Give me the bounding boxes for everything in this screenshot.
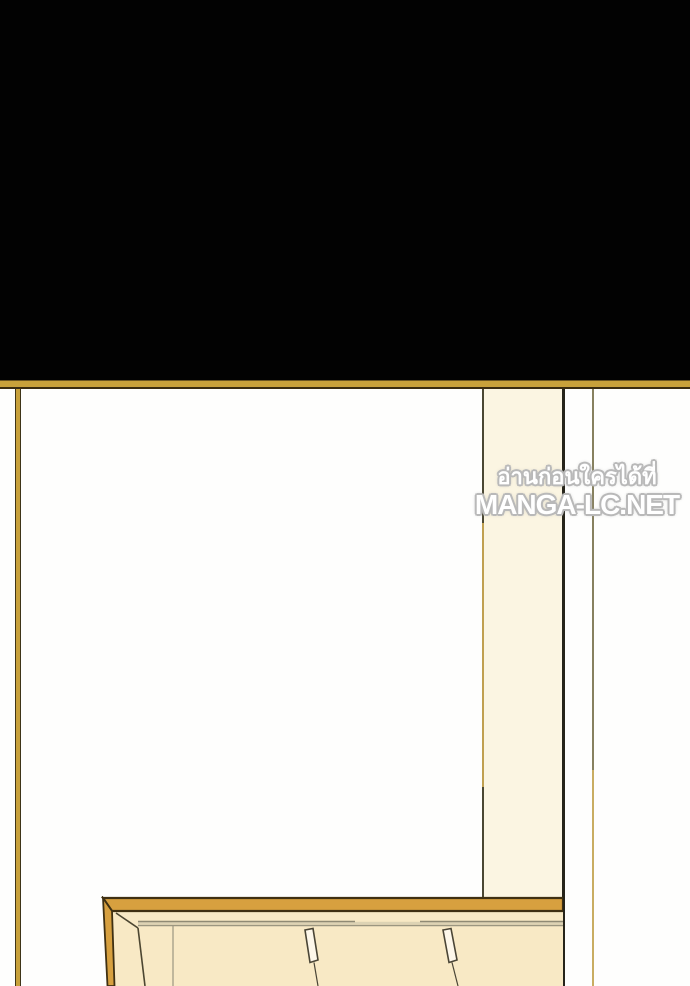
table-rim-top bbox=[103, 898, 563, 911]
room-scene: อ่านก่อนใครได้ที่ MANGA-LC.NET bbox=[0, 389, 690, 986]
top-black-panel bbox=[0, 0, 690, 380]
comic-page: อ่านก่อนใครได้ที่ MANGA-LC.NET bbox=[0, 0, 690, 986]
watermark-site-text: MANGA-LC.NET bbox=[468, 490, 686, 520]
wall-corner-trim-left bbox=[15, 389, 21, 986]
wooden-table bbox=[100, 896, 563, 986]
panel-divider-gold-band bbox=[0, 380, 690, 389]
table-drawing bbox=[100, 896, 563, 986]
table-rim-left bbox=[103, 898, 115, 986]
watermark-thai-text: อ่านก่อนใครได้ที่ bbox=[468, 463, 686, 490]
site-watermark: อ่านก่อนใครได้ที่ MANGA-LC.NET bbox=[468, 463, 686, 520]
